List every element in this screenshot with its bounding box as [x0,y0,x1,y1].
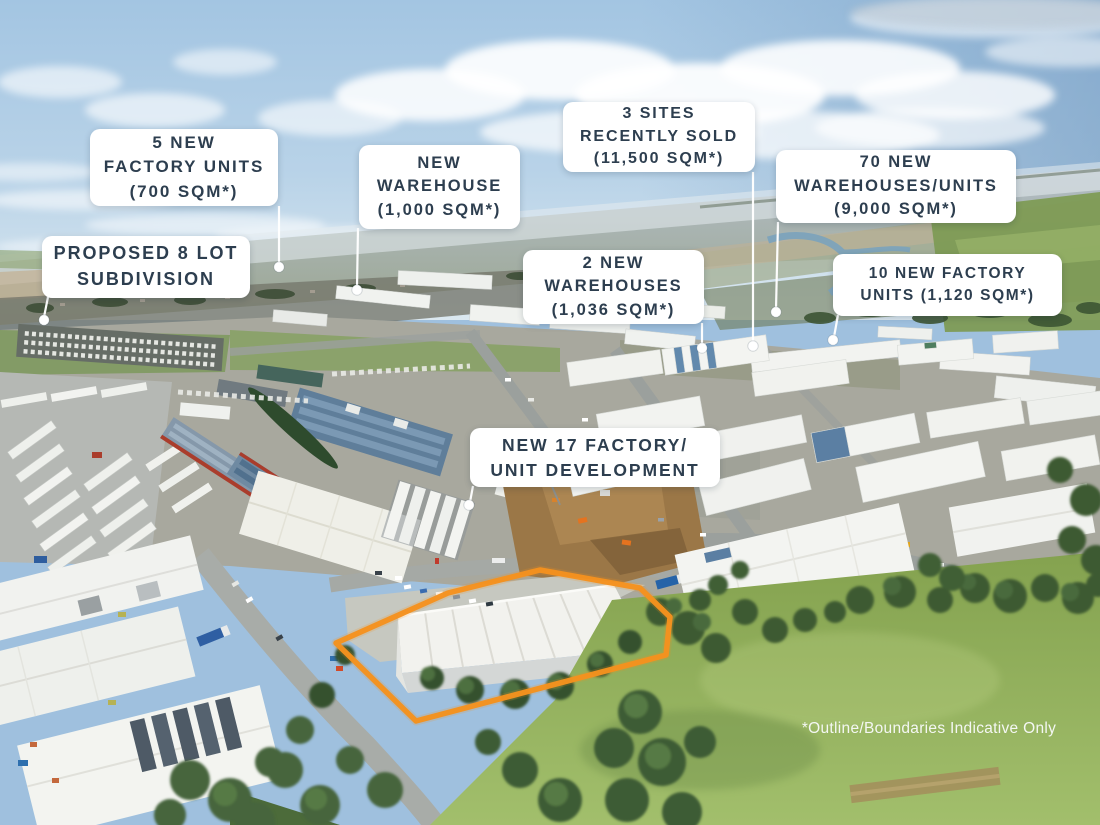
leader-dot [39,315,49,325]
leader-dot [352,285,362,295]
leader-line [357,228,358,287]
leader-dot [771,307,781,317]
leader-dot [274,262,284,272]
leader-dot [748,341,758,351]
blue-truck [196,625,230,647]
boundaries-disclaimer: *Outline/Boundaries Indicative Only [793,720,1065,738]
callout-5-new-factory-units: 5 NEW FACTORY UNITS (700 SQM*) [90,129,278,206]
leader-dot [464,500,474,510]
leader-dot [697,343,707,353]
callout-new-17-factory-unit-development: NEW 17 FACTORY/ UNIT DEVELOPMENT [470,428,720,487]
callout-3-sites-recently-sold: 3 SITES RECENTLY SOLD (11,500 SQM*) [563,102,755,172]
leader-dot [828,335,838,345]
aerial-marketing-image: 5 NEW FACTORY UNITS (700 SQM*) PROPOSED … [0,0,1100,825]
callout-new-warehouse: NEW WAREHOUSE (1,000 SQM*) [359,145,520,229]
aerial-photo [0,0,1100,825]
callout-proposed-8-lot-subdivision: PROPOSED 8 LOT SUBDIVISION [42,236,250,298]
callout-70-new-warehouses-units: 70 NEW WAREHOUSES/UNITS (9,000 SQM*) [776,150,1016,223]
callout-2-new-warehouses: 2 NEW WAREHOUSES (1,036 SQM*) [523,250,704,324]
callout-10-new-factory-units: 10 NEW FACTORY UNITS (1,120 SQM*) [833,254,1062,316]
